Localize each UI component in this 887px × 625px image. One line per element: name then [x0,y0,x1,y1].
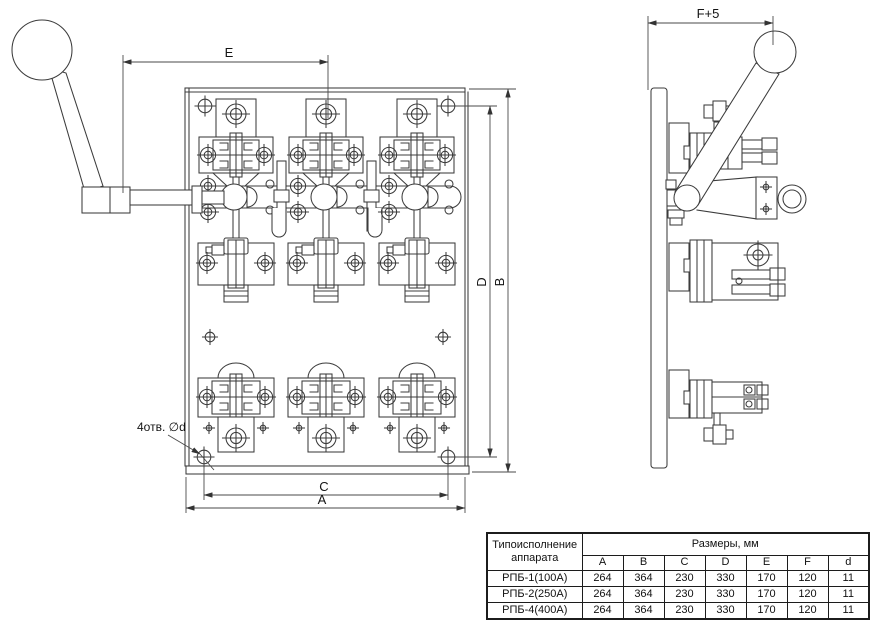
col-header-F: F [787,555,828,570]
dim-label-D: D [474,277,489,286]
dim-value-cell: 11 [828,602,869,619]
pole-assemblies [197,99,457,452]
col-header-D: D [705,555,746,570]
dim-value-cell: 264 [582,586,623,602]
handle-ball [12,20,72,80]
dim-value-cell: 230 [664,602,705,619]
type-cell: РПБ-4(400А) [487,602,582,619]
dim-value-cell: 264 [582,570,623,586]
col-header-A: A [582,555,623,570]
table-row: РПБ-1(100А) 264 364 230 330 170 120 11 [487,570,869,586]
col-header-C: C [664,555,705,570]
dim-label-B: B [492,278,507,287]
dim-value-cell: 264 [582,602,623,619]
dims-header-cell: Размеры, мм [582,533,869,555]
dim-label-A: A [318,492,327,507]
handle-shaft [130,190,192,205]
dim-value-cell: 230 [664,586,705,602]
dim-value-cell: 230 [664,570,705,586]
dim-value-cell: 170 [746,586,787,602]
dim-value-cell: 364 [623,602,664,619]
col-header-d: d [828,555,869,570]
front-view: E B D C A [12,20,516,513]
col-header-E: E [746,555,787,570]
dim-value-cell: 11 [828,570,869,586]
dim-value-cell: 364 [623,586,664,602]
dimensions-table: Типоисполнение аппарата Размеры, мм A B … [486,532,870,620]
holes-note-label: 4отв. ∅d [137,420,186,434]
drawing-sheet: E B D C A [0,0,887,625]
side-view: F+5 [648,6,806,468]
dim-label-F: F+5 [697,6,720,21]
table-row: РПБ-4(400А) 264 364 230 330 170 120 11 [487,602,869,619]
dim-value-cell: 364 [623,570,664,586]
dim-value-cell: 120 [787,570,828,586]
dim-value-cell: 170 [746,602,787,619]
type-cell: РПБ-1(100А) [487,570,582,586]
padlock-ring [778,185,806,213]
type-header-cell: Типоисполнение аппарата [487,533,582,570]
dim-value-cell: 330 [705,586,746,602]
type-cell: РПБ-2(250А) [487,586,582,602]
dim-value-cell: 330 [705,602,746,619]
dim-value-cell: 120 [787,602,828,619]
dim-label-E: E [225,45,234,60]
side-pole-bottom [669,370,768,444]
dim-value-cell: 170 [746,570,787,586]
handle-ball-side [754,31,796,73]
dim-value-cell: 120 [787,586,828,602]
side-panel [651,88,667,468]
side-pole-middle [669,240,785,302]
dim-value-cell: 11 [828,586,869,602]
col-header-B: B [623,555,664,570]
dim-value-cell: 330 [705,570,746,586]
table-row: РПБ-2(250А) 264 364 230 330 170 120 11 [487,586,869,602]
